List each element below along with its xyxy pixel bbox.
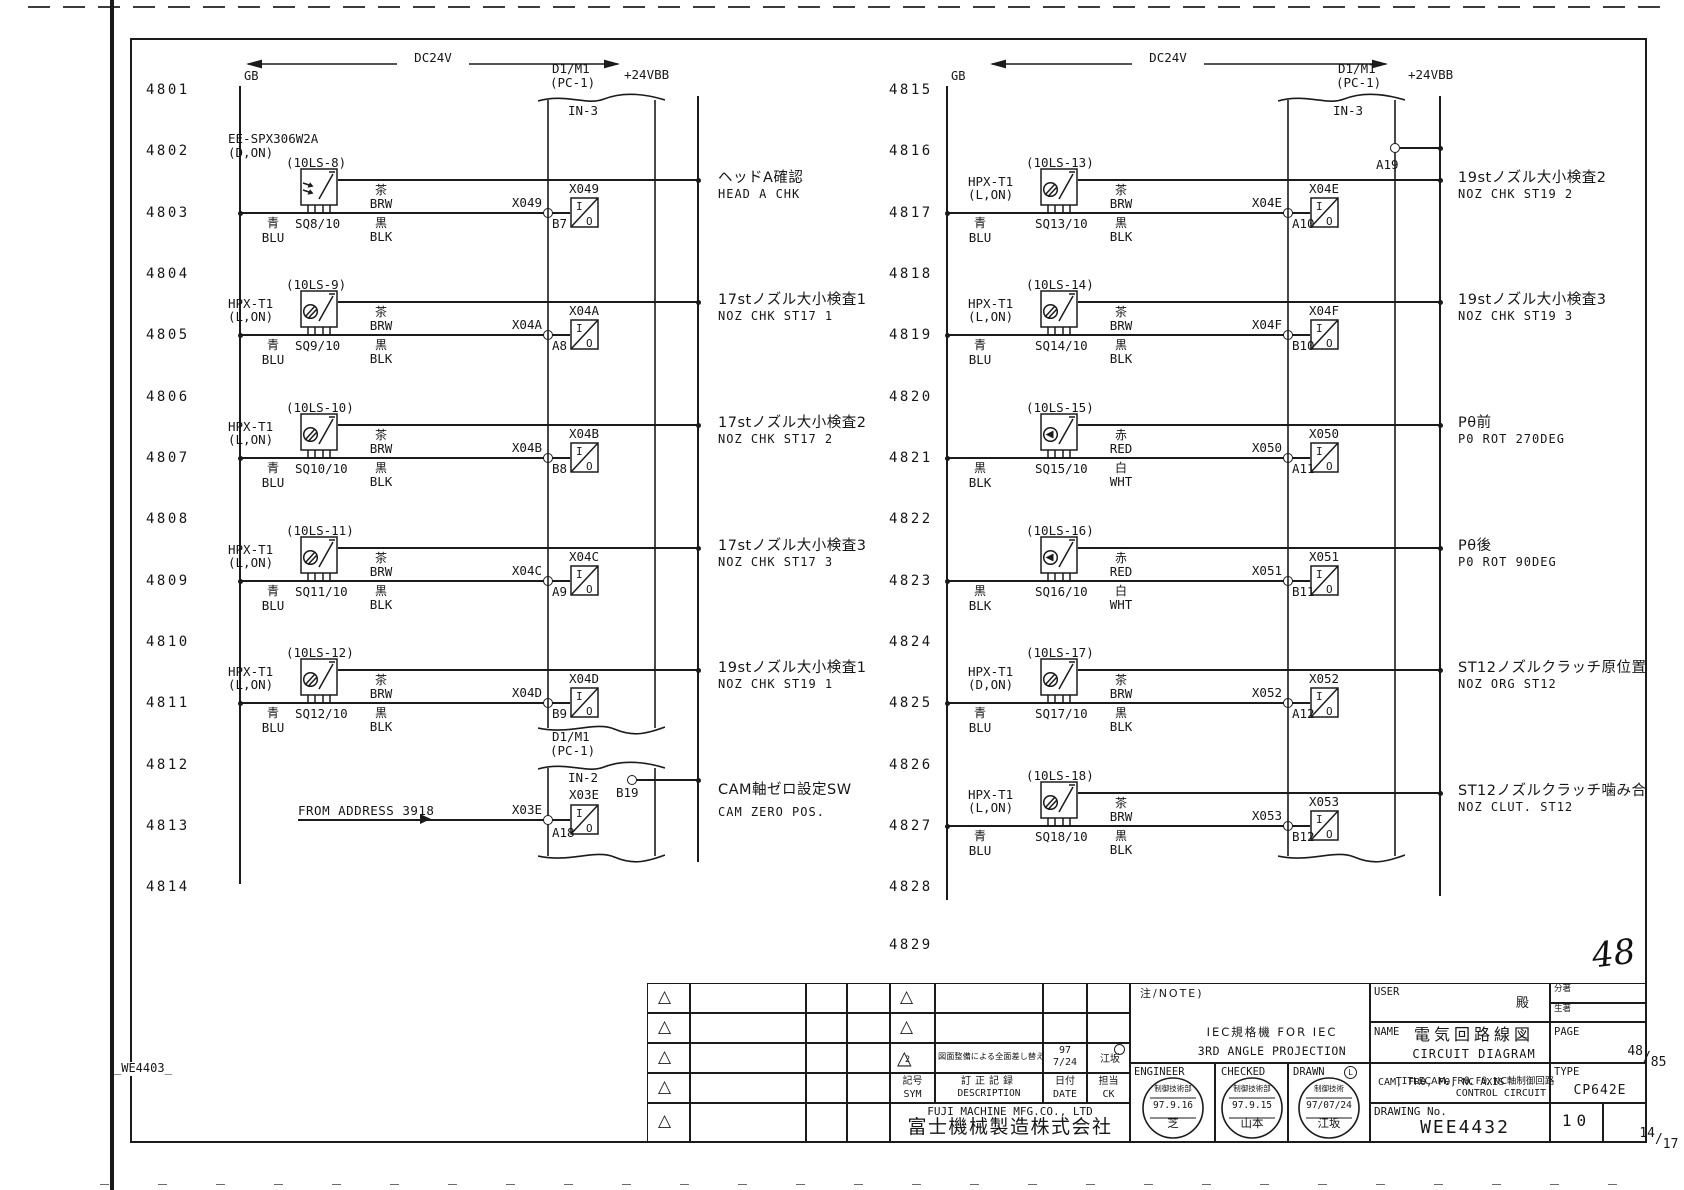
wire-color-label-jp: 黒 [957, 462, 1003, 476]
row-number: 4818 [889, 266, 933, 282]
bus-junction-dot [945, 333, 950, 338]
sensor-sq-label: SQ15/10 [1035, 462, 1088, 476]
rev-header-sym-jp: 記号 [890, 1076, 935, 1088]
bus-junction-dot [238, 701, 243, 706]
wire-color-label-jp: 青 [250, 217, 296, 231]
sensor-ls-label: (10LS-12) [286, 646, 354, 660]
sensor-ls-label: (10LS-11) [286, 524, 354, 538]
sensor-symbol [300, 290, 338, 336]
sensor-sq-label: SQ16/10 [1035, 585, 1088, 599]
sensor-bottom-wire [240, 580, 570, 582]
class1-label: 分著 [1554, 985, 1571, 995]
signal-name-label: X04A [482, 318, 542, 332]
function-label-en: NOZ CHK ST17 3 [718, 556, 833, 570]
sensor-bottom-wire [947, 334, 1310, 336]
handwritten-page-number: 48 [1590, 932, 1638, 977]
revision-cell [690, 1013, 806, 1043]
dc-supply-label: DC24V [1132, 51, 1204, 65]
row-number: 4820 [889, 389, 933, 405]
row-number: 4827 [889, 818, 933, 834]
sensor-ls-label: (10LS-13) [1026, 156, 1094, 170]
revision-triangle-icon: △ [900, 988, 913, 1008]
function-label-jp: Pθ後 [1458, 538, 1492, 555]
revision-triangle-icon: △ [658, 988, 671, 1008]
bus-junction-dot [945, 456, 950, 461]
sensor-mode-label: (L,ON) [228, 556, 273, 570]
row-number: 4821 [889, 450, 933, 466]
sensor-ls-label: (10LS-14) [1026, 278, 1094, 292]
sensor-symbol [300, 536, 338, 582]
function-label-en: P0 ROT 90DEG [1458, 556, 1557, 570]
wire-color-label-jp: 青 [957, 339, 1003, 353]
iec-standard-note: IEC規格機 FOR IEC [1178, 1026, 1366, 1039]
sensor-symbol [1040, 536, 1078, 582]
row-number: 4829 [889, 937, 933, 953]
connector-port: IN-2 [537, 771, 629, 785]
row-number: 4801 [146, 82, 190, 98]
rail-label: +24VBB [624, 68, 669, 82]
revision-cell [806, 1043, 847, 1073]
gb-bus-line [946, 86, 948, 900]
drawn-stamp-date: 97/07/24 [1297, 1101, 1361, 1112]
row-number: 4826 [889, 757, 933, 773]
revision-cell [935, 1013, 1043, 1043]
sensor-symbol [1040, 658, 1078, 704]
sensor-bottom-wire [240, 457, 570, 459]
scan-artifact-top-line [28, 6, 1670, 8]
bus-junction-dot [945, 824, 950, 829]
wire-color-label-en: BLK [957, 599, 1003, 613]
function-label-jp: 19stノズル大小検査1 [718, 660, 866, 677]
function-label-jp: ヘッドA確認 [718, 170, 803, 187]
revision-cell [690, 1043, 806, 1073]
sensor-symbol [1040, 168, 1078, 214]
wire-color-label-jp: 青 [957, 217, 1003, 231]
wire-color-label-en: RED [1096, 442, 1146, 456]
sensor-symbol [1040, 413, 1078, 459]
pin-label: A19 [1376, 158, 1399, 172]
io-address-label: X03E [559, 788, 609, 802]
wire-color-label-en: BRW [356, 687, 406, 701]
revision-cell [847, 1043, 890, 1073]
revision-year-value: 97 [1046, 1045, 1084, 1057]
svg-text:O: O [586, 822, 593, 835]
sensor-bottom-wire [947, 825, 1310, 827]
revision-cell [847, 1013, 890, 1043]
sheet-fraction: 14/17 [1608, 1118, 1678, 1163]
rev-header-sym-en: SYM [890, 1089, 935, 1101]
signal-name-label: X03E [482, 803, 542, 817]
wire-color-label-en: BLK [1096, 230, 1146, 244]
engineer-stamp-date: 97.9.16 [1141, 1101, 1205, 1112]
revision-cell [806, 1073, 847, 1103]
revision-cell [1043, 1013, 1087, 1043]
rail-junction-dot [696, 423, 701, 428]
wire-color-label-en: BLU [957, 844, 1003, 858]
function-label-jp: 19stノズル大小検査2 [1458, 170, 1606, 187]
company-name-jp: 富士機械製造株式会社 [890, 1117, 1130, 1139]
wire-color-label-en: BLK [356, 230, 406, 244]
checked-stamp-date: 97.9.15 [1220, 1101, 1284, 1112]
wire-color-label-en: BLU [957, 721, 1003, 735]
title-en1: CAM, FRθ, Fθ, NC AXIS [1378, 1077, 1504, 1089]
sensor-mode-label: (L,ON) [228, 433, 273, 447]
wire-color-label-en: BLK [1096, 843, 1146, 857]
pin-label: A18 [552, 826, 575, 840]
rail-junction-dot [1438, 423, 1443, 428]
checked-stamp-dept: 制御技術部 [1220, 1085, 1284, 1094]
signal-name-label: X049 [482, 196, 542, 210]
bus-label: GB [951, 70, 965, 84]
sensor-mode-label: (L,ON) [228, 678, 273, 692]
sensor-ls-label: (10LS-17) [1026, 646, 1094, 660]
wire-color-label-jp: 青 [250, 462, 296, 476]
type-label: TYPE [1554, 1066, 1579, 1078]
function-label-jp: ST12ノズルクラッチ原位置 [1458, 660, 1647, 677]
wire-color-label-en: BLU [250, 476, 296, 490]
wire-color-label-en: BLU [250, 353, 296, 367]
wire-color-label-en: BLK [356, 475, 406, 489]
function-label-en: NOZ CLUT. ST12 [1458, 801, 1573, 815]
wire-color-label-en: BRW [1096, 197, 1146, 211]
wire-color-label-en: BLK [356, 720, 406, 734]
page-no: 48 [1627, 1044, 1643, 1059]
revision-cell [847, 983, 890, 1013]
sensor-ls-label: (10LS-9) [286, 278, 346, 292]
row-number: 4822 [889, 511, 933, 527]
wire-color-label-jp: 青 [250, 585, 296, 599]
signal-name-label: X04E [1222, 196, 1282, 210]
rail-label: +24VBB [1408, 68, 1453, 82]
sensor-mode-label: (L,ON) [968, 310, 1013, 324]
sheet-frac-slash: / [1655, 1132, 1663, 1147]
revision-cell [847, 1103, 890, 1143]
drawing-sheet: _WE4403_ 48 注/NOTE) IEC規格機 FOR IEC 3RD A… [0, 0, 1684, 1190]
sensor-bottom-wire [947, 702, 1310, 704]
gb-bus-line [239, 86, 241, 884]
revision-triangle-icon: △ [658, 1112, 671, 1132]
function-label-en: HEAD A CHK [718, 188, 800, 202]
wire-color-label-en: BRW [1096, 319, 1146, 333]
wire-color-label-en: BRW [356, 319, 406, 333]
row-number: 4817 [889, 205, 933, 221]
sheet-code-label: _WE4403_ [114, 1062, 172, 1076]
sheet-frac-top: 14 [1639, 1126, 1655, 1141]
wire-color-label-jp: 黒 [957, 585, 1003, 599]
wire-color-label-jp: 青 [250, 339, 296, 353]
sensor-bottom-wire [240, 334, 570, 336]
revision-cell [806, 1103, 847, 1143]
scan-artifact-left-bar [110, 0, 114, 1190]
sensor-bottom-wire [947, 580, 1310, 582]
supply-rail-line [697, 96, 699, 862]
junction-dot [696, 778, 701, 783]
terminal-node [1390, 143, 1400, 153]
rev-header-desc-jp: 訂正記録 [935, 1076, 1043, 1088]
pin-label: B19 [616, 786, 639, 800]
wire-color-label-en: BLK [1096, 720, 1146, 734]
row-number: 4824 [889, 634, 933, 650]
sensor-sq-label: SQ17/10 [1035, 707, 1088, 721]
scan-artifact-bottom-line [100, 1184, 1640, 1185]
revision-cell [690, 1073, 806, 1103]
revision-cell [806, 1013, 847, 1043]
wire-color-label-en: BLU [957, 353, 1003, 367]
signal-name-label: X053 [1222, 809, 1282, 823]
sensor-ls-label: (10LS-16) [1026, 524, 1094, 538]
bus-junction-dot [238, 456, 243, 461]
row-number: 4804 [146, 266, 190, 282]
row-number: 4811 [146, 695, 190, 711]
sensor-mode-label: (D,ON) [968, 678, 1013, 692]
sensor-sq-label: SQ11/10 [295, 585, 348, 599]
sensor-sq-label: SQ8/10 [295, 217, 340, 231]
function-label-jp: 17stノズル大小検査2 [718, 415, 866, 432]
sensor-mode-label: (L,ON) [968, 801, 1013, 815]
sensor-symbol [300, 658, 338, 704]
user-suffix: 殿 [1516, 997, 1529, 1012]
title-en2: CONTROL CIRCUIT [1400, 1088, 1546, 1100]
page-label: PAGE [1554, 1026, 1579, 1038]
wire-color-label-en: BLU [250, 231, 296, 245]
bus-junction-dot [238, 579, 243, 584]
row-number: 4812 [146, 757, 190, 773]
sensor-sq-label: SQ14/10 [1035, 339, 1088, 353]
drawing-name-jp: 電気回路線図 [1404, 1026, 1544, 1044]
revision-triangle-icon: △ [900, 1018, 913, 1038]
wire-color-label-jp: 青 [957, 707, 1003, 721]
connector-sub: (PC-1) [550, 76, 595, 90]
rail-junction-dot [696, 300, 701, 305]
check-mark-circle-icon [1114, 1044, 1125, 1055]
sensor-sq-label: SQ18/10 [1035, 830, 1088, 844]
junction-dot [1438, 146, 1443, 151]
revision-triangle-icon: △ [658, 1018, 671, 1038]
sensor-bottom-wire [240, 212, 570, 214]
sensor-symbol [300, 413, 338, 459]
wire-color-label-en: BRW [1096, 687, 1146, 701]
signal-name-label: X051 [1222, 564, 1282, 578]
pin-wire [637, 779, 698, 781]
revision-cell [847, 1073, 890, 1103]
rail-junction-dot [696, 546, 701, 551]
wire-color-label-en: BLU [957, 231, 1003, 245]
sheet-number: 10 [1552, 1112, 1601, 1130]
row-number: 4806 [146, 389, 190, 405]
row-number: 4803 [146, 205, 190, 221]
function-label-en: CAM ZERO POS. [718, 806, 825, 820]
sensor-mode-label: (L,ON) [968, 188, 1013, 202]
sensor-symbol [1040, 290, 1078, 336]
wire-color-label-en: BRW [356, 197, 406, 211]
function-label-en: NOZ CHK ST17 1 [718, 310, 833, 324]
rev-header-ck-en: CK [1087, 1089, 1130, 1101]
sensor-symbol [1040, 781, 1078, 827]
rev-header-ck-jp: 担当 [1087, 1076, 1130, 1088]
row-number: 4823 [889, 573, 933, 589]
bus-junction-dot [945, 579, 950, 584]
sensor-bottom-wire [947, 457, 1310, 459]
drawing-no-value: WEE4432 [1400, 1118, 1530, 1139]
engineer-stamp-name: 芝 [1141, 1117, 1205, 1130]
wire-color-label-en: RED [1096, 565, 1146, 579]
sensor-sq-label: SQ12/10 [295, 707, 348, 721]
rail-junction-dot [1438, 300, 1443, 305]
sheet-frac-bot: 17 [1663, 1137, 1679, 1152]
bus-junction-dot [945, 701, 950, 706]
sensor-ls-label: (10LS-10) [286, 401, 354, 415]
row-number: 4807 [146, 450, 190, 466]
row-number: 4802 [146, 143, 190, 159]
checked-stamp-name: 山本 [1220, 1117, 1284, 1130]
pin-wire [1400, 147, 1440, 149]
type-value: CP642E [1558, 1084, 1642, 1099]
sensor-sq-label: SQ13/10 [1035, 217, 1088, 231]
function-label-jp: 17stノズル大小検査3 [718, 538, 866, 555]
supply-rail-line [1439, 96, 1441, 896]
terminal-node [543, 815, 553, 825]
row-number: 4814 [146, 879, 190, 895]
signal-name-label: X052 [1222, 686, 1282, 700]
row-number: 4813 [146, 818, 190, 834]
note-label: 注/NOTE) [1140, 988, 1204, 1001]
signal-name-label: X04B [482, 441, 542, 455]
class2-label: 生著 [1554, 1005, 1571, 1015]
signal-name-label: X04C [482, 564, 542, 578]
function-label-en: NOZ CHK ST19 2 [1458, 188, 1573, 202]
drawn-stamp-name: 江坂 [1297, 1117, 1361, 1130]
wire-color-label-en: BLU [250, 599, 296, 613]
revision-desc-value: 図面整備による全面差し替え [938, 1052, 1041, 1061]
connector-sub: (PC-1) [1336, 76, 1381, 90]
revision-cell [935, 983, 1043, 1013]
function-label-jp: CAM軸ゼロ設定SW [718, 782, 852, 799]
row-number: 4809 [146, 573, 190, 589]
revision-cell [690, 1103, 806, 1143]
function-label-en: NOZ CHK ST19 1 [718, 678, 833, 692]
function-label-en: NOZ CHK ST17 2 [718, 433, 833, 447]
revision-date-value: 7/24 [1046, 1057, 1084, 1069]
connector-port: IN-3 [537, 104, 629, 118]
function-label-en: NOZ ORG ST12 [1458, 678, 1557, 692]
connector-port: IN-3 [1302, 104, 1394, 118]
wire-color-label-jp: 青 [250, 707, 296, 721]
revision-cell [1043, 983, 1087, 1013]
wire-color-label-en: BRW [1096, 810, 1146, 824]
wire-color-label-en: BLK [957, 476, 1003, 490]
rail-junction-dot [1438, 546, 1443, 551]
row-number: 4825 [889, 695, 933, 711]
revision-cell [1087, 1013, 1130, 1043]
projection-note: 3RD ANGLE PROJECTION [1178, 1045, 1366, 1058]
wire-color-label-en: WHT [1096, 475, 1146, 489]
sensor-bottom-wire [240, 702, 570, 704]
terminal-node [627, 775, 637, 785]
row-number: 4816 [889, 143, 933, 159]
function-label-en: NOZ CHK ST19 3 [1458, 310, 1573, 324]
function-label-jp: 17stノズル大小検査1 [718, 292, 866, 309]
rev-header-date-jp: 日付 [1043, 1076, 1087, 1088]
address-wire [298, 819, 570, 821]
sensor-mode-label: (L,ON) [228, 310, 273, 324]
bus-junction-dot [238, 333, 243, 338]
function-label-en: P0 ROT 270DEG [1458, 433, 1565, 447]
row-number: 4815 [889, 82, 933, 98]
connector-box-in3-left [538, 91, 665, 737]
sensor-sq-label: SQ10/10 [295, 462, 348, 476]
connector-sub: (PC-1) [550, 744, 595, 758]
sensor-bottom-wire [947, 212, 1310, 214]
drawn-stamp-dept: 制御技術 [1297, 1085, 1361, 1094]
row-number: 4828 [889, 879, 933, 895]
dc-supply-label: DC24V [397, 51, 469, 65]
engineer-stamp-dept: 制御技術部 [1141, 1085, 1205, 1094]
revision-triangle-icon: △ [658, 1048, 671, 1068]
row-number: 4810 [146, 634, 190, 650]
rail-junction-dot [1438, 668, 1443, 673]
wire-color-label-en: BLK [356, 352, 406, 366]
drawing-name-en: CIRCUIT DIAGRAM [1404, 1048, 1544, 1062]
row-number: 4808 [146, 511, 190, 527]
wire-arrowhead-icon [420, 814, 431, 824]
signal-name-label: X050 [1222, 441, 1282, 455]
signal-name-label: X04D [482, 686, 542, 700]
rail-junction-dot [1438, 791, 1443, 796]
revision-sym-value: 2 [905, 1056, 910, 1066]
from-address-label: FROM ADDRESS 3918 [298, 804, 434, 818]
function-label-jp: 19stノズル大小検査3 [1458, 292, 1606, 309]
bus-junction-dot [945, 211, 950, 216]
revision-cell [806, 983, 847, 1013]
sensor-mode-label: (D,ON) [228, 146, 273, 160]
page-of: 85 [1651, 1055, 1667, 1070]
function-label-jp: ST12ノズルクラッチ噛み合 [1458, 783, 1647, 800]
revision-cell [690, 983, 806, 1013]
revision-triangle-icon: △ [658, 1078, 671, 1098]
sensor-ls-label: (10LS-18) [1026, 769, 1094, 783]
wire-color-label-en: BRW [356, 442, 406, 456]
signal-name-label: X04F [1222, 318, 1282, 332]
sensor-sq-label: SQ9/10 [295, 339, 340, 353]
row-number: 4805 [146, 327, 190, 343]
rev-header-date-en: DATE [1043, 1089, 1087, 1101]
svg-text:I: I [576, 807, 583, 820]
sensor-ls-label: (10LS-15) [1026, 401, 1094, 415]
wire-color-label-en: WHT [1096, 598, 1146, 612]
rail-junction-dot [696, 668, 701, 673]
sensor-ls-label: (10LS-8) [286, 156, 346, 170]
wire-color-label-en: BRW [356, 565, 406, 579]
bus-junction-dot [238, 211, 243, 216]
wire-color-label-en: BLU [250, 721, 296, 735]
rev-header-desc-en: DESCRIPTION [935, 1089, 1043, 1100]
connector-box-in3-right [1278, 91, 1405, 865]
sensor-symbol [300, 168, 338, 214]
wire-color-label-jp: 青 [957, 830, 1003, 844]
user-label: USER [1374, 986, 1399, 998]
wire-color-label-en: BLK [356, 598, 406, 612]
revision-ck-value: 江坂 [1092, 1054, 1128, 1066]
bus-label: GB [244, 70, 258, 84]
row-number: 4819 [889, 327, 933, 343]
rail-junction-dot [1438, 178, 1443, 183]
function-label-jp: Pθ前 [1458, 415, 1492, 432]
wire-color-label-en: BLK [1096, 352, 1146, 366]
name-label: NAME [1374, 1026, 1399, 1038]
rail-junction-dot [696, 178, 701, 183]
revision-cell [1087, 983, 1130, 1013]
